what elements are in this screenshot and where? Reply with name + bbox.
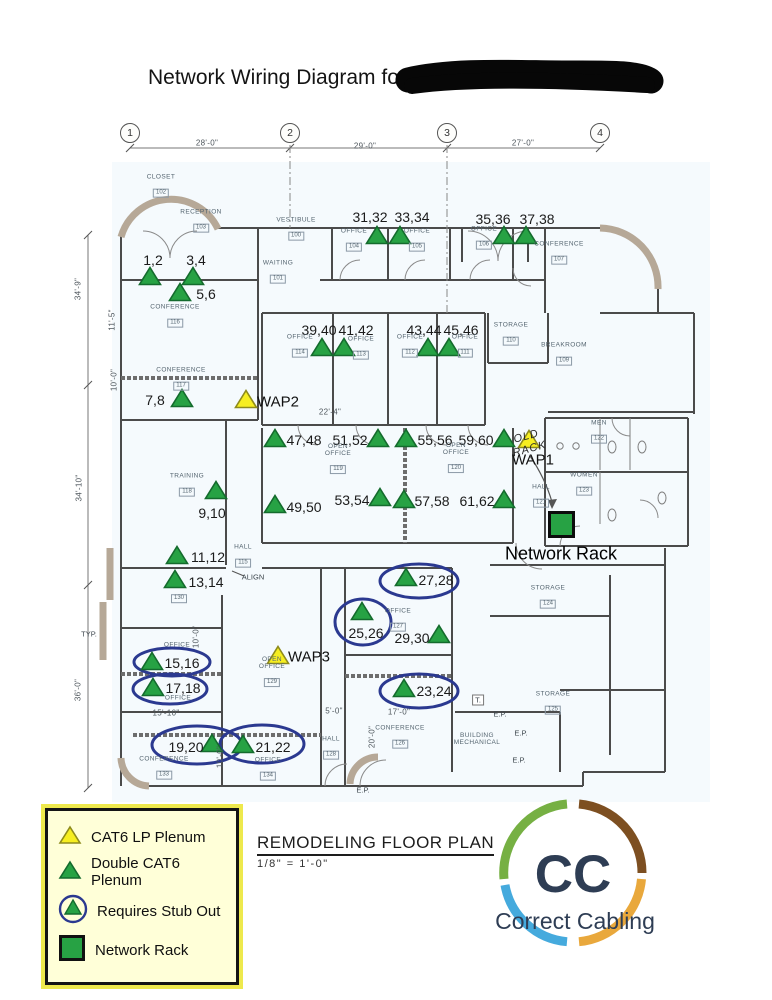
- dimension-11-5-: 11'-5": [108, 309, 117, 331]
- room-label-office-111: OFFICE111: [452, 334, 478, 359]
- marker-label-53-54: 53,54: [334, 492, 369, 508]
- room-label-storage-125: STORAGE125: [536, 691, 570, 716]
- cat6-lp-triangle-icon: [58, 825, 82, 850]
- marker-triangle-7-8: [170, 388, 194, 413]
- marker-label-1-2: 1,2: [143, 252, 162, 268]
- dimension-34-9-: 34'-9": [74, 278, 83, 300]
- room-label-conference-107: CONFERENCE107: [534, 241, 584, 266]
- marker-label-7-8: 7,8: [145, 392, 164, 408]
- marker-label-15-16: 15,16: [164, 655, 199, 671]
- diagram-page: Network Wiring Diagram for 1,23,45,67,89…: [0, 0, 772, 1000]
- plan-scale: 1/8" = 1'-0": [257, 858, 494, 870]
- marker-label-21-22: 21,22: [255, 739, 290, 755]
- marker-label-23-24: 23,24: [416, 683, 451, 699]
- room-label-waiting-101: WAITING101: [263, 260, 293, 285]
- marker-label-47-48: 47,48: [286, 432, 321, 448]
- dimension-10-0-: 10'-0": [216, 746, 225, 768]
- marker-triangle-17-18: [141, 677, 165, 702]
- dimension-36-0-: 36'-0": [74, 679, 83, 701]
- room-label-open-office-119: OPENOFFICE119: [325, 443, 351, 475]
- legend-item-cat6-lp: CAT6 LP Plenum: [58, 825, 228, 850]
- legend-label: Requires Stub Out: [97, 903, 220, 920]
- dimension-15-10-: 15'-10": [153, 709, 180, 718]
- marker-label-11-12: 11,12: [191, 549, 225, 565]
- annotation-align: ALIGN: [242, 573, 265, 582]
- dimension-17-0-: 17'-0": [388, 708, 410, 717]
- dimension-34-10-: 34'-10": [75, 475, 84, 502]
- dimension-10-0-: 10'-0": [192, 626, 201, 648]
- marker-label-37-38: 37,38: [519, 211, 554, 227]
- room-label-office-127: OFFICE127: [385, 608, 411, 633]
- room-label-vestibule-100: VESTIBULE100: [276, 217, 315, 242]
- legend-item-stub-out: Requires Stub Out: [58, 894, 228, 929]
- marker-triangle-15-16: [140, 651, 164, 676]
- marker-triangle-53-54: [368, 487, 392, 512]
- marker-triangle-51-52: [366, 428, 390, 453]
- room-label-office-113: OFFICE113: [348, 336, 374, 361]
- room-label-women-123: WOMEN123: [570, 472, 598, 497]
- marker-triangle-29-30: [427, 624, 451, 649]
- marker-label-35-36: 35,36: [475, 211, 510, 227]
- legend-item-double-cat6: Double CAT6 Plenum: [58, 855, 228, 889]
- double-cat6-triangle-icon: [58, 860, 82, 885]
- room-label-office-114: OFFICE114: [287, 334, 313, 359]
- grid-bubble-3: 3: [437, 123, 457, 143]
- network-rack-label: Network Rack: [505, 544, 617, 565]
- marker-label-3-4: 3,4: [186, 252, 205, 268]
- annotation-typ-: TYP.: [81, 630, 97, 639]
- dimension-22-4-: 22'-4": [319, 408, 341, 417]
- room-label-tag-130: 130: [171, 586, 187, 604]
- room-label-conference-117: CONFERENCE117: [156, 367, 206, 392]
- annotation-e-p-: E.P.: [512, 756, 525, 765]
- marker-triangle-31-32: [365, 225, 389, 250]
- marker-triangle-39-40: [310, 337, 334, 362]
- marker-triangle-11-12: [165, 545, 189, 570]
- grid-bubble-4: 4: [590, 123, 610, 143]
- room-label-hall-115: HALL115: [234, 544, 252, 569]
- grid-bubble-1: 1: [120, 123, 140, 143]
- room-label-office-112: OFFICE112: [397, 334, 423, 359]
- legend-label: CAT6 LP Plenum: [91, 829, 206, 846]
- room-label-breakroom-109: BREAKROOM109: [541, 342, 587, 367]
- room-label-office-106: OFFICE106: [471, 226, 497, 251]
- marker-triangle-61-62: [492, 489, 516, 514]
- marker-label-61-62: 61,62: [459, 493, 494, 509]
- marker-triangle-25-26: [350, 601, 374, 626]
- grid-dimension-28-0-: 28'-0": [196, 139, 218, 148]
- dimension-5-0-: 5'-0": [325, 707, 342, 716]
- room-label-storage-110: STORAGE110: [494, 322, 528, 347]
- marker-label-49-50: 49,50: [286, 499, 321, 515]
- marker-triangle-1-2: [138, 266, 162, 291]
- marker-triangle-27-28: [394, 567, 418, 592]
- marker-label-29-30: 29,30: [394, 630, 429, 646]
- network-rack-symbol: [548, 511, 575, 538]
- network-rack-square-icon: [58, 934, 86, 967]
- marker-triangle-57-58: [392, 489, 416, 514]
- legend-item-network-rack: Network Rack: [58, 934, 228, 967]
- marker-label-5-6: 5,6: [196, 286, 215, 302]
- marker-triangle-47-48: [263, 428, 287, 453]
- wap-triangle-wap2: [234, 389, 258, 414]
- marker-label-13-14: 13,14: [188, 574, 223, 590]
- legend-box: CAT6 LP Plenum Double CAT6 Plenum Requir…: [45, 808, 239, 985]
- marker-label-33-34: 33,34: [394, 209, 429, 225]
- annotation-t-: T.: [472, 695, 484, 706]
- plan-title-block: REMODELING FLOOR PLAN 1/8" = 1'-0": [257, 833, 494, 870]
- marker-triangle-9-10: [204, 480, 228, 505]
- marker-label-57-58: 57,58: [414, 493, 449, 509]
- marker-triangle-55-56: [394, 428, 418, 453]
- marker-triangle-49-50: [263, 494, 287, 519]
- annotation-e-p-: E.P.: [493, 710, 506, 719]
- marker-label-19-20: 19,20: [168, 739, 203, 755]
- room-label-training-118: TRAINING118: [170, 473, 204, 498]
- room-label-office: OFFICE: [165, 694, 191, 701]
- plan-title: REMODELING FLOOR PLAN: [257, 833, 494, 856]
- marker-label-9-10: 9,10: [198, 505, 225, 521]
- wap-label-wap3: WAP3: [288, 649, 330, 666]
- grid-dimension-29-0-: 29'-0": [354, 142, 376, 151]
- logo-initials: CC: [535, 845, 612, 904]
- room-label-reception-103: RECEPTION103: [180, 209, 222, 234]
- annotation-e-p-: E.P.: [356, 786, 369, 795]
- room-label-men-122: MEN122: [591, 420, 607, 445]
- marker-triangle-21-22: [231, 734, 255, 759]
- legend-label: Network Rack: [95, 942, 188, 959]
- room-label-storage-124: STORAGE124: [531, 585, 565, 610]
- marker-triangle-23-24: [392, 678, 416, 703]
- logo-name: Correct Cabling: [495, 908, 655, 934]
- room-label-hall-128: HALL128: [322, 736, 340, 761]
- wap-label-wap2: WAP2: [257, 394, 299, 411]
- room-label-closet-102: CLOSET102: [147, 174, 175, 199]
- grid-dimension-27-0-: 27'-0": [512, 139, 534, 148]
- dimension-10-0-: 10'-0": [110, 369, 119, 391]
- room-label-building-mechanical: BUILDINGMECHANICAL: [454, 732, 501, 746]
- room-label-office-105: OFFICE105: [404, 228, 430, 253]
- marker-label-27-28: 27,28: [418, 572, 453, 588]
- room-label-conference-116: CONFERENCE116: [150, 304, 200, 329]
- room-label-hall-121: HALL121: [532, 484, 550, 509]
- room-label-conference-133: CONFERENCE133: [139, 756, 189, 781]
- room-label-conference-126: CONFERENCE126: [375, 725, 425, 750]
- room-label-open-office-120: OPENOFFICE120: [443, 442, 469, 474]
- correct-cabling-logo: CC Correct Cabling: [480, 788, 690, 958]
- stub-out-circle-icon: [58, 894, 88, 929]
- grid-bubble-2: 2: [280, 123, 300, 143]
- marker-label-31-32: 31,32: [352, 209, 387, 225]
- room-label-office-134: OFFICE134: [255, 757, 281, 782]
- room-label-open-office-129: OPENOFFICE129: [259, 656, 285, 688]
- dimension-20-0-: 20'-0": [368, 726, 377, 748]
- annotation-e-p-: E.P.: [514, 729, 527, 738]
- legend-label: Double CAT6 Plenum: [91, 855, 228, 889]
- room-label-office-104: OFFICE104: [341, 228, 367, 253]
- marker-label-25-26: 25,26: [348, 625, 383, 641]
- room-label-office: OFFICE: [164, 641, 190, 648]
